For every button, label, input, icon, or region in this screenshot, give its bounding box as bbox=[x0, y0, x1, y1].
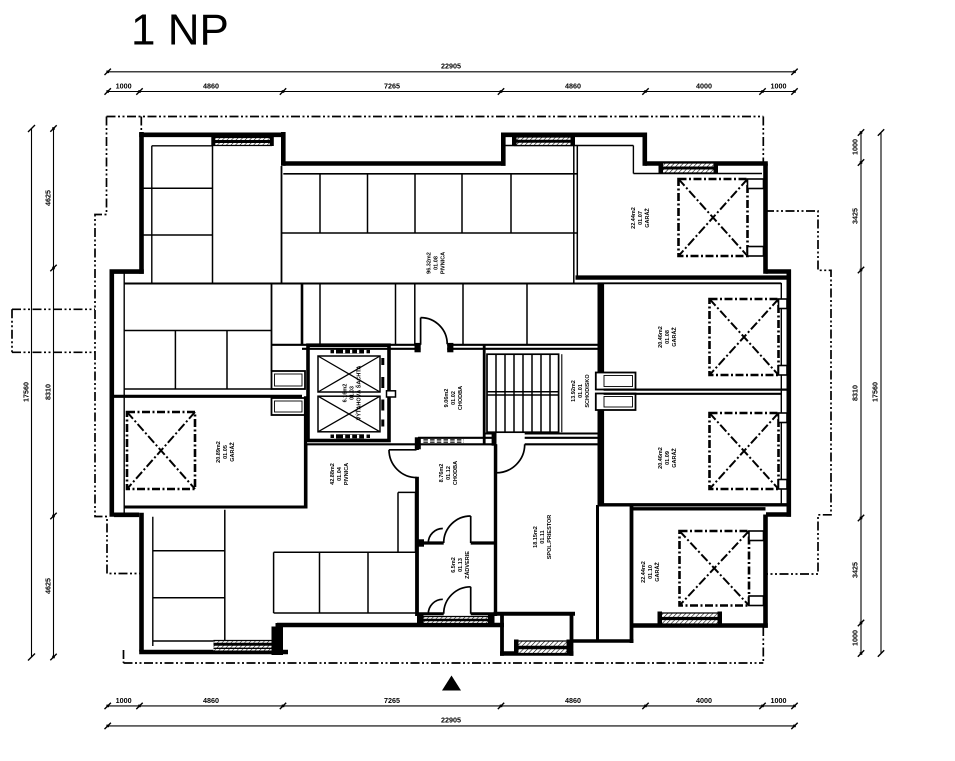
svg-text:7265: 7265 bbox=[384, 82, 400, 91]
svg-text:4860: 4860 bbox=[203, 82, 219, 91]
svg-text:4000: 4000 bbox=[696, 82, 712, 91]
svg-text:1 NP: 1 NP bbox=[131, 6, 229, 55]
svg-text:1000: 1000 bbox=[851, 139, 860, 155]
svg-text:4860: 4860 bbox=[565, 696, 581, 705]
svg-text:1000: 1000 bbox=[771, 696, 787, 705]
svg-text:1000: 1000 bbox=[116, 696, 132, 705]
svg-text:22905: 22905 bbox=[441, 61, 461, 70]
svg-text:17560: 17560 bbox=[22, 382, 31, 402]
svg-text:17560: 17560 bbox=[871, 382, 880, 402]
svg-text:4000: 4000 bbox=[696, 696, 712, 705]
svg-text:3425: 3425 bbox=[851, 208, 860, 224]
svg-text:3425: 3425 bbox=[851, 562, 860, 578]
svg-text:22905: 22905 bbox=[441, 715, 461, 724]
svg-text:4625: 4625 bbox=[44, 190, 53, 206]
svg-text:4860: 4860 bbox=[203, 696, 219, 705]
svg-text:1000: 1000 bbox=[771, 82, 787, 91]
svg-text:8310: 8310 bbox=[44, 384, 53, 400]
svg-text:1000: 1000 bbox=[116, 82, 132, 91]
svg-text:4860: 4860 bbox=[565, 82, 581, 91]
svg-text:7265: 7265 bbox=[384, 696, 400, 705]
svg-text:1000: 1000 bbox=[851, 630, 860, 646]
svg-text:8310: 8310 bbox=[851, 385, 860, 401]
svg-text:4625: 4625 bbox=[44, 578, 53, 594]
